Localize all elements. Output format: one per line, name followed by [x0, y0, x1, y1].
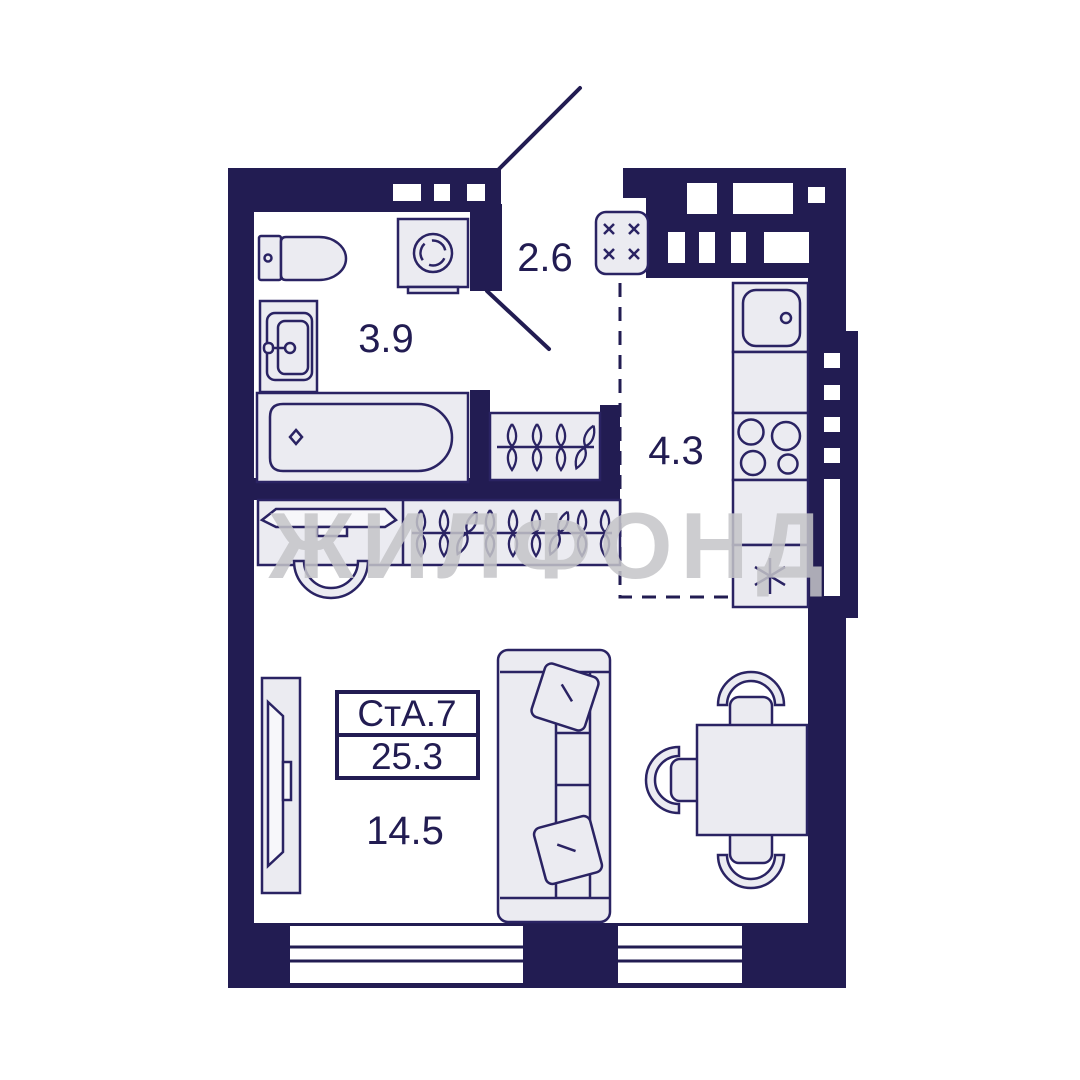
- window-right: [618, 926, 742, 983]
- dining-table: [697, 725, 807, 835]
- bath-niche-wall: [470, 204, 502, 291]
- left-wall: [228, 168, 254, 985]
- entry-door-leaf: [499, 88, 580, 169]
- unit-total-area-label: 25.3: [371, 736, 443, 777]
- vent-opening: [687, 183, 717, 214]
- electrical-panel: [596, 212, 648, 274]
- vent-opening: [467, 184, 485, 201]
- vent-opening: [764, 232, 809, 263]
- hall-wardrobe: [490, 413, 600, 480]
- floor-plan-canvas: 2.6 3.9 4.3 14.5 СтА.7 25.3 ЖИЛФОНД: [0, 0, 1080, 1080]
- sofa: [498, 650, 610, 922]
- vent-opening: [699, 232, 715, 263]
- window-left: [290, 926, 523, 983]
- vent-opening: [393, 184, 421, 201]
- floor-plan-drawing: 2.6 3.9 4.3 14.5 СтА.7 25.3 ЖИЛФОНД: [0, 0, 1080, 1080]
- bathroom-area-label: 3.9: [358, 317, 414, 361]
- top-wall: [228, 168, 501, 212]
- bathroom-door-leaf: [487, 291, 549, 349]
- stove: [733, 413, 808, 480]
- unit-info-box: СтА.7 25.3: [337, 692, 478, 778]
- wall-niche: [824, 448, 840, 463]
- vent-opening: [731, 232, 746, 263]
- wall-niche: [824, 385, 840, 400]
- hall-wardrobe-left-wall: [470, 390, 490, 482]
- vent-opening: [733, 183, 793, 214]
- unit-code-label: СтА.7: [357, 693, 456, 734]
- hall-wardrobe-right-wall: [600, 405, 620, 482]
- vent-opening: [808, 187, 825, 203]
- kitchen-area-label: 4.3: [648, 429, 704, 473]
- dining-set: [646, 672, 807, 888]
- washing-machine: [398, 219, 468, 293]
- living-area-label: 14.5: [366, 809, 444, 853]
- watermark-text: ЖИЛФОНД: [268, 493, 832, 598]
- vent-opening: [434, 184, 450, 201]
- wall-niche: [824, 353, 840, 368]
- kitchen-sink-unit: [733, 283, 808, 352]
- tv: [262, 678, 300, 893]
- vent-opening: [668, 232, 685, 263]
- wall-niche: [824, 417, 840, 432]
- counter-segment: [733, 352, 808, 413]
- bathtub: [257, 393, 468, 482]
- hallway-area-label: 2.6: [517, 236, 573, 280]
- bathroom-sink: [260, 301, 317, 392]
- toilet: [259, 236, 346, 280]
- right-wall-pilaster: [846, 331, 858, 618]
